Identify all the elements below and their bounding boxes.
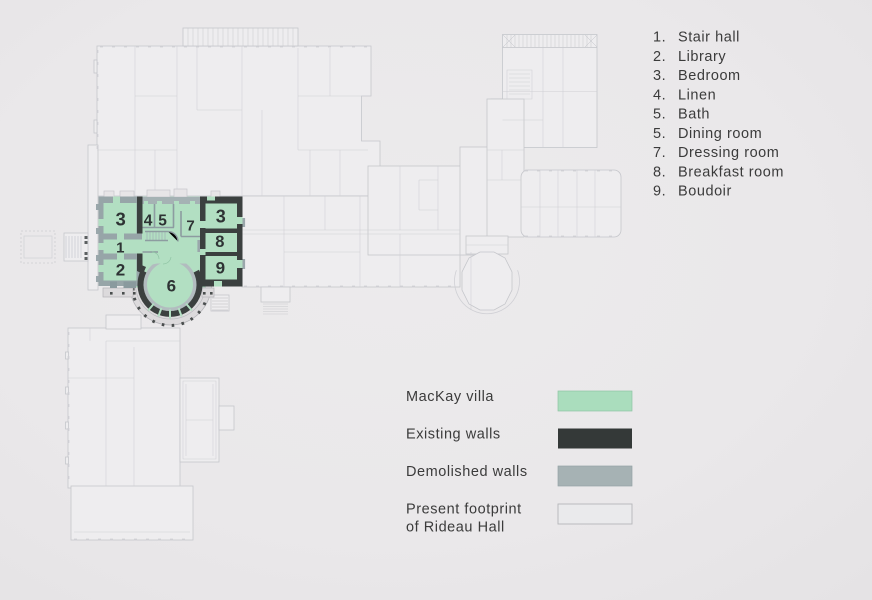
svg-text:MacKay villa: MacKay villa	[406, 389, 494, 405]
svg-text:Breakfast room: Breakfast room	[678, 164, 784, 180]
svg-text:3: 3	[216, 207, 226, 227]
svg-text:Boudoir: Boudoir	[678, 184, 732, 200]
svg-text:1.: 1.	[653, 30, 666, 46]
svg-text:Present footprint: Present footprint	[406, 502, 522, 518]
svg-text:6: 6	[167, 276, 176, 295]
svg-text:3.: 3.	[653, 68, 666, 84]
svg-text:4: 4	[144, 212, 153, 229]
svg-text:Bath: Bath	[678, 107, 710, 123]
svg-text:1: 1	[116, 240, 124, 257]
svg-text:Linen: Linen	[678, 87, 716, 103]
svg-text:Library: Library	[678, 49, 726, 65]
svg-text:of Rideau Hall: of Rideau Hall	[406, 520, 505, 536]
svg-text:2: 2	[116, 261, 125, 280]
svg-text:3: 3	[116, 209, 126, 230]
svg-text:8.: 8.	[653, 164, 666, 180]
svg-text:Dressing room: Dressing room	[678, 145, 779, 161]
svg-text:7.: 7.	[653, 145, 666, 161]
svg-text:Bedroom: Bedroom	[678, 68, 741, 84]
svg-text:9.: 9.	[653, 184, 666, 200]
svg-text:5: 5	[158, 212, 167, 229]
svg-text:Dining room: Dining room	[678, 126, 762, 142]
svg-text:5.: 5.	[653, 107, 666, 123]
svg-text:4.: 4.	[653, 87, 666, 103]
svg-text:5.: 5.	[653, 126, 666, 142]
svg-text:Demolished walls: Demolished walls	[406, 464, 528, 480]
svg-text:7: 7	[186, 218, 194, 235]
svg-text:2.: 2.	[653, 49, 666, 65]
svg-text:Existing walls: Existing walls	[406, 427, 501, 443]
svg-text:9: 9	[216, 259, 225, 278]
svg-text:Stair hall: Stair hall	[678, 30, 740, 46]
svg-text:8: 8	[215, 233, 224, 251]
